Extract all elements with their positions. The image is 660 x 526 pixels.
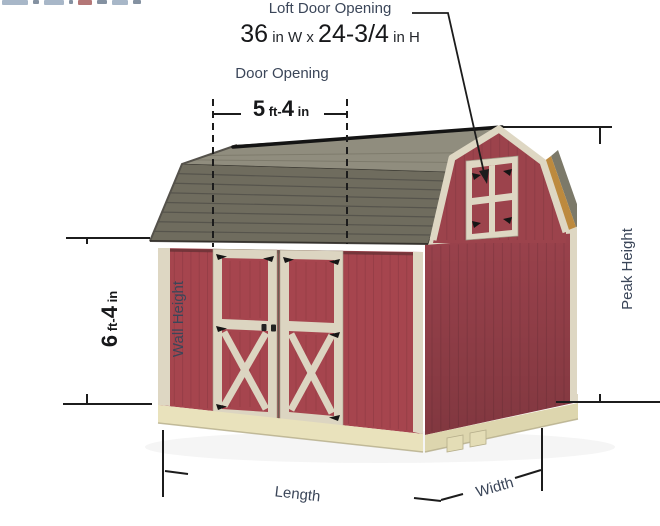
width-label: Width xyxy=(435,461,554,515)
peak-height-annotation: Peak Height 10 ft-3 in (not including fl… xyxy=(577,144,627,394)
loft-door xyxy=(466,156,518,240)
clipped-text-fragment xyxy=(2,0,141,6)
length-label: Length xyxy=(169,469,426,520)
peak-height-label: Peak Height xyxy=(617,144,639,394)
front-right-corner-trim xyxy=(413,252,423,434)
loft-door-opening-label: Loft Door Opening xyxy=(240,0,420,19)
right-wall xyxy=(425,224,578,435)
door-opening-label: Door Opening xyxy=(211,65,353,84)
loft-height-value: 24-3/4 xyxy=(318,20,389,48)
door-opening-value: 5 ft-4 in xyxy=(211,96,351,125)
wall-height-annotation: 6 ft-4 in Wall Height xyxy=(56,244,112,394)
wall-height-value: 6 ft-4 in xyxy=(96,244,127,394)
wall-height-label: Wall Height xyxy=(167,244,191,394)
width-value: 10 ft xyxy=(452,521,573,526)
loft-door-opening-value: 36 in W x 24-3/4 in H xyxy=(222,19,438,53)
double-doors xyxy=(213,249,343,426)
loft-width-value: 36 xyxy=(240,20,268,48)
shed-dimension-diagram: Loft Door Opening 36 in W x 24-3/4 in H … xyxy=(0,0,660,526)
